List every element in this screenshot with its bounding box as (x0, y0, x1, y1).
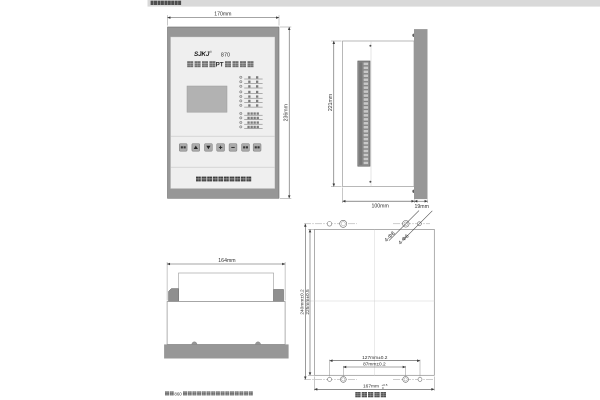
svg-text:870: 870 (221, 52, 230, 58)
svg-text:PT: PT (216, 62, 224, 69)
svg-text:225mm±0.5: 225mm±0.5 (305, 289, 311, 315)
svg-text:SJKJ: SJKJ (194, 51, 210, 58)
svg-text:860: 860 (174, 391, 182, 396)
svg-text:19mm: 19mm (415, 204, 429, 210)
svg-text:221mm: 221mm (328, 94, 334, 111)
svg-text:87mm±0.2: 87mm±0.2 (363, 362, 386, 368)
svg-text:164mm: 164mm (218, 258, 235, 264)
svg-text:236mm: 236mm (283, 104, 289, 121)
svg-text:170mm: 170mm (214, 12, 231, 18)
svg-text:100mm: 100mm (372, 203, 389, 209)
svg-text:240mm±0.2: 240mm±0.2 (299, 289, 305, 315)
svg-text:167mm: 167mm (363, 384, 379, 390)
svg-text:127mm±0.2: 127mm±0.2 (362, 355, 388, 361)
